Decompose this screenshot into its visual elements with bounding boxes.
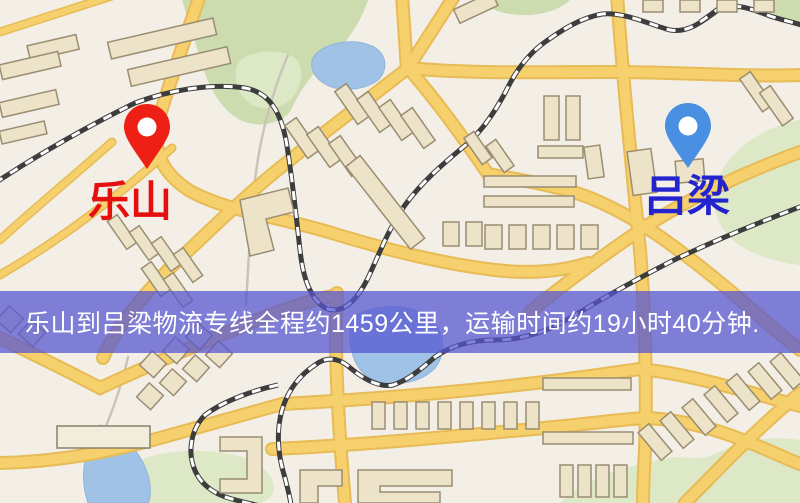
banner-text: 乐山到吕梁物流专线全程约1459公里，运输时间约19小时40分钟. [0, 304, 760, 340]
lake [312, 42, 385, 90]
map-canvas: 乐山 吕梁 乐山到吕梁物流专线全程约1459公里，运输时间约19小时40分钟. [0, 0, 800, 503]
base-map [0, 0, 800, 503]
info-banner: 乐山到吕梁物流专线全程约1459公里，运输时间约19小时40分钟. [0, 291, 800, 353]
destination-label: 吕梁 [644, 176, 730, 219]
origin-label: 乐山 [88, 181, 172, 223]
destination-pin-icon[interactable] [662, 102, 714, 170]
origin-pin-icon[interactable] [121, 103, 173, 171]
